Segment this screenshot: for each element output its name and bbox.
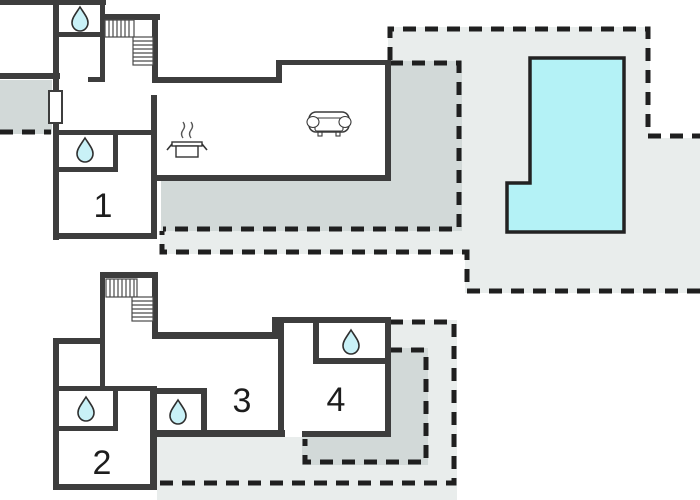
floor-plan-canvas: 1 2 3 4: [0, 0, 700, 500]
room-label-3: 3: [233, 382, 252, 420]
stairs-icon: [105, 20, 153, 65]
water-drop-icon: [78, 397, 94, 421]
water-drop-icon: [72, 7, 88, 31]
room-label-1: 1: [94, 187, 113, 225]
water-drop-icon: [77, 138, 93, 162]
room-label-4: 4: [327, 381, 346, 419]
sofa-icon: [307, 112, 351, 136]
water-drop-icon: [343, 330, 359, 354]
stairs-icon: [106, 279, 153, 321]
living-terrace-dark: [161, 61, 462, 231]
cooking-pot-icon: [167, 122, 207, 157]
room-label-2: 2: [93, 444, 112, 482]
left-terrace-dark: [0, 80, 52, 134]
lower-terrace-dark: [302, 348, 428, 465]
window: [49, 91, 62, 123]
water-drop-icon: [170, 400, 186, 424]
floor-plan: 1 2 3 4: [0, 0, 700, 500]
